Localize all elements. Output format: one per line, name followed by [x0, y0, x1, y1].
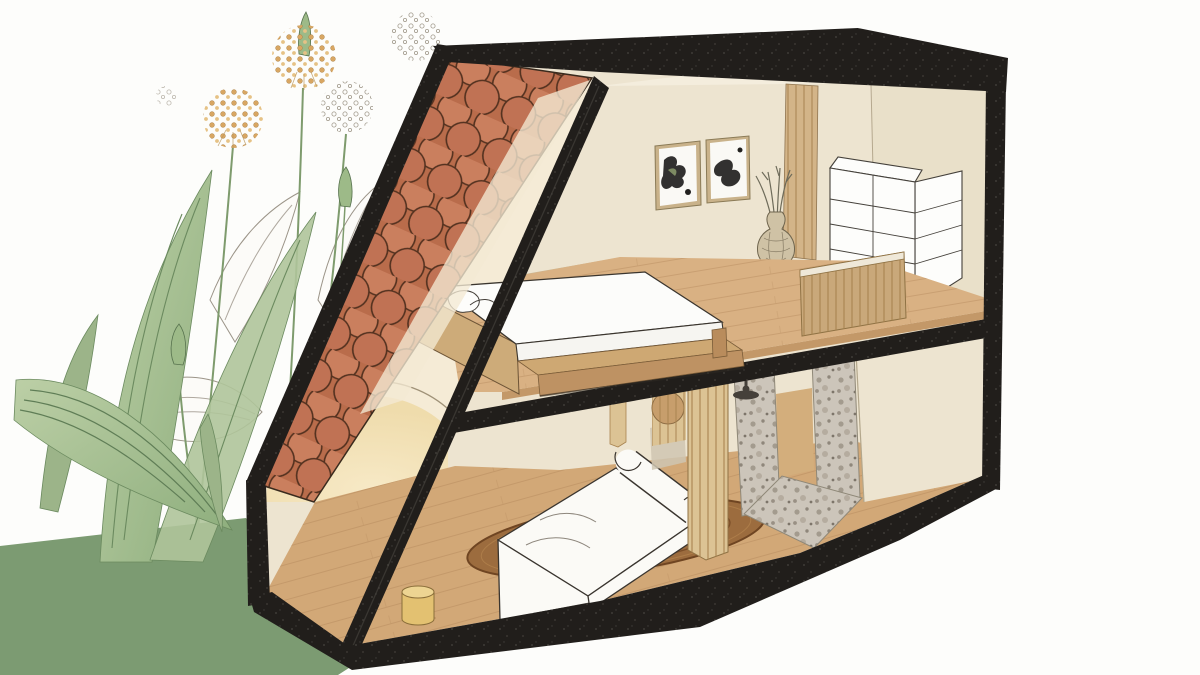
framed-art-left [655, 141, 701, 210]
terrazzo-pillar-right [812, 353, 860, 508]
illustration-canvas [0, 0, 1200, 675]
framed-art-right [706, 136, 750, 203]
bed-leg [712, 328, 727, 358]
stool [402, 586, 434, 625]
corner-post [246, 480, 270, 606]
flower-head-sketch [156, 86, 176, 106]
hanging-slat-screen [688, 374, 728, 560]
shower-back-wood [776, 388, 814, 478]
cutaway-illustration [0, 0, 1200, 675]
flower-head-sketch [321, 81, 373, 133]
